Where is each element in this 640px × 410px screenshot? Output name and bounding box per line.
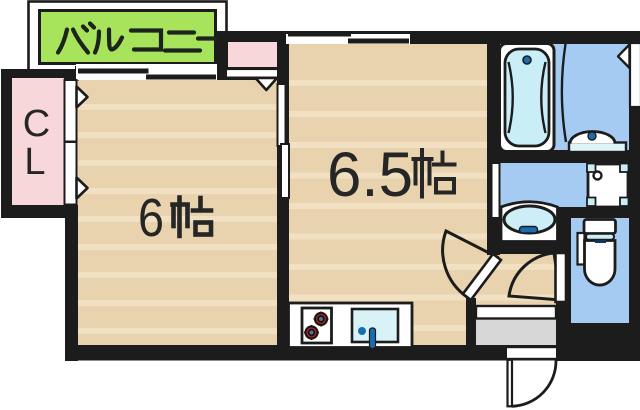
svg-text:6: 6 xyxy=(138,188,164,248)
svg-text:L: L xyxy=(24,141,45,183)
svg-text:C: C xyxy=(23,103,50,145)
svg-text:6.5: 6.5 xyxy=(327,140,413,210)
